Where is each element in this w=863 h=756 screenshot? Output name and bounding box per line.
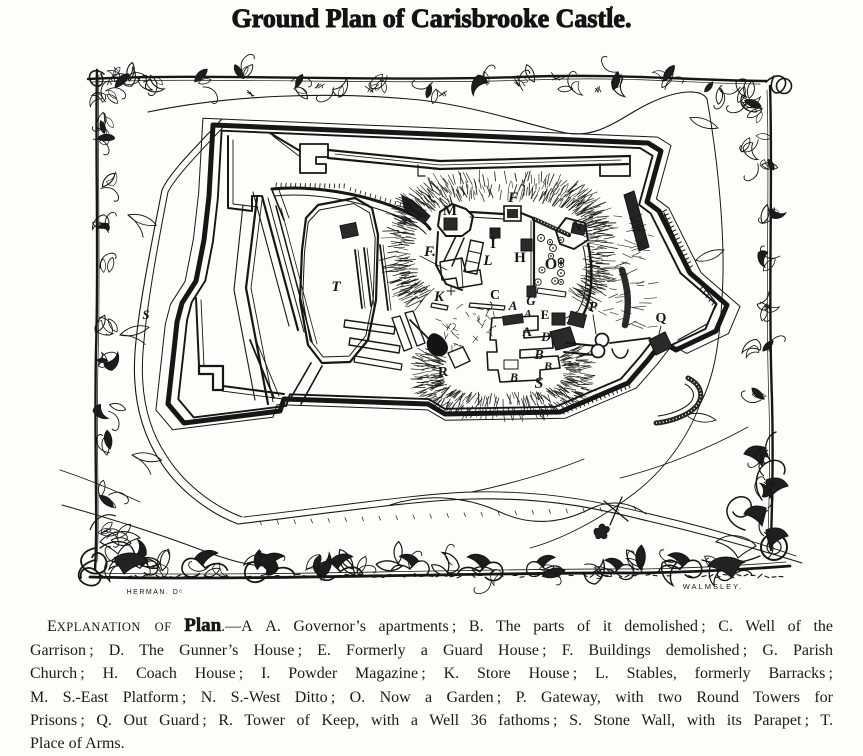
svg-text:Q: Q (656, 311, 667, 326)
svg-text:A: A (523, 308, 531, 320)
svg-text:R: R (438, 365, 449, 380)
svg-text:S: S (535, 375, 544, 392)
svg-text:N: N (571, 219, 584, 235)
svg-text:D: D (540, 329, 551, 344)
svg-text:I: I (490, 236, 496, 252)
svg-text:HERMAN. Dᶜ: HERMAN. Dᶜ (127, 589, 184, 596)
svg-text:F: F (507, 190, 518, 206)
svg-text:B: B (533, 348, 543, 363)
svg-text:S: S (142, 307, 149, 322)
svg-text:M: M (443, 203, 457, 219)
svg-text:L: L (482, 253, 492, 269)
svg-text:K: K (433, 289, 445, 305)
svg-text:WALMSLEY.: WALMSLEY. (683, 582, 744, 591)
svg-text:A: A (522, 324, 532, 339)
svg-text:C: C (490, 288, 500, 303)
svg-text:B: B (543, 359, 552, 373)
svg-text:B: B (509, 370, 518, 384)
svg-text:A: A (508, 298, 518, 313)
svg-text:O: O (545, 256, 557, 273)
svg-text:P: P (589, 300, 598, 315)
svg-text:H: H (514, 250, 526, 266)
svg-text:F.: F. (423, 244, 436, 260)
svg-text:E: E (541, 307, 550, 322)
svg-text:T: T (331, 279, 341, 295)
svg-text:G: G (526, 293, 536, 308)
